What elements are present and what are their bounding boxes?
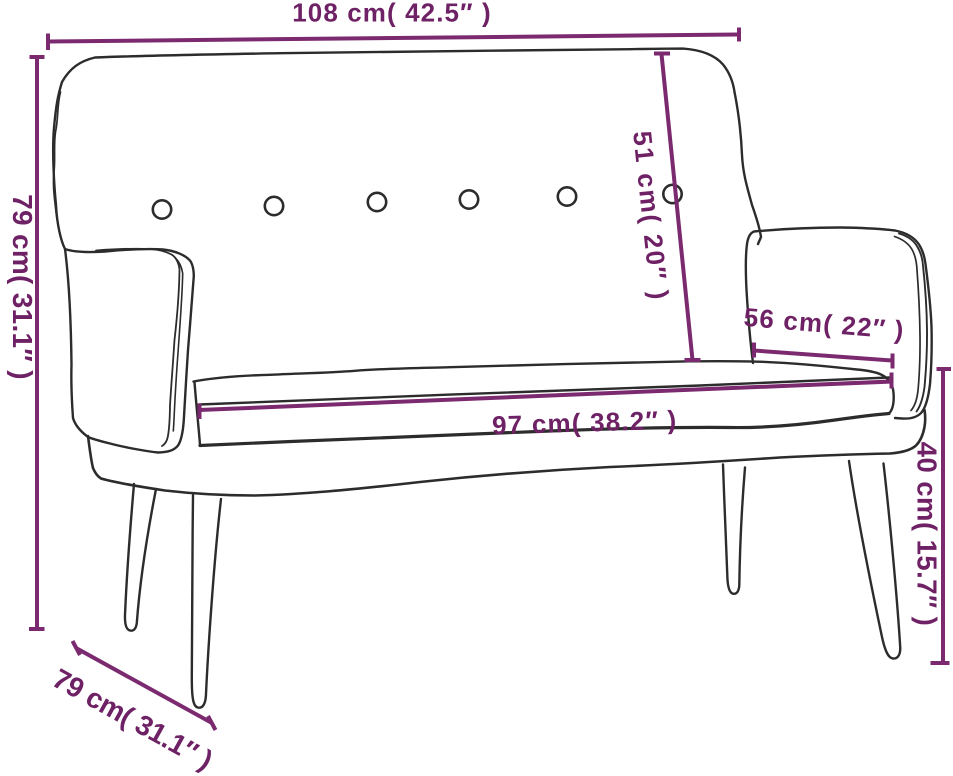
svg-text:56 cm( 22″ ): 56 cm( 22″ )	[743, 302, 906, 345]
svg-text:97 cm( 38.2″ ): 97 cm( 38.2″ )	[492, 405, 678, 441]
svg-text:40 cm( 15.7″ ): 40 cm( 15.7″ )	[912, 442, 943, 627]
svg-text:51 cm( 20″ ): 51 cm( 20″ )	[627, 130, 675, 303]
svg-text:108 cm( 42.5″ ): 108 cm( 42.5″ )	[292, 0, 492, 28]
svg-text:79 cm( 31.1″ ): 79 cm( 31.1″ )	[7, 194, 38, 380]
